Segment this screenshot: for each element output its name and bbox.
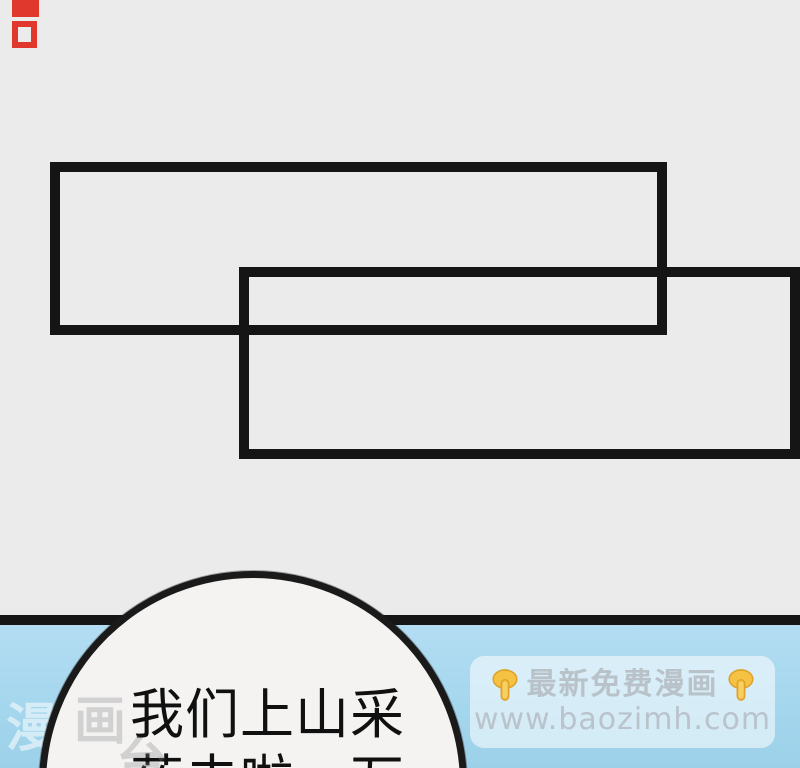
promo-watermark-badge: 最新免费漫画 www.baozimh.com <box>470 656 775 748</box>
speech-line-1: 我们上山采 <box>130 682 450 748</box>
speech-line-2: 药去啦，万 <box>130 748 450 768</box>
panel-frame-lower <box>239 267 800 459</box>
comic-page: 漫 我们上山采 药去啦，万 画 台 最新免费漫画 www.baozimh.com <box>0 0 800 768</box>
site-watermark-char-tai: 台 <box>116 738 168 768</box>
pointing-down-hand-icon <box>725 668 757 702</box>
red-clipped-decoration-top <box>12 0 39 17</box>
promo-headline: 最新免费漫画 <box>527 668 719 702</box>
speech-bubble-text: 我们上山采 药去啦，万 <box>130 682 450 768</box>
red-clipped-decoration-bottom <box>12 21 37 48</box>
promo-url: www.baozimh.com <box>474 704 771 736</box>
promo-headline-row: 最新免费漫画 <box>489 668 757 702</box>
pointing-down-hand-icon <box>489 668 521 702</box>
